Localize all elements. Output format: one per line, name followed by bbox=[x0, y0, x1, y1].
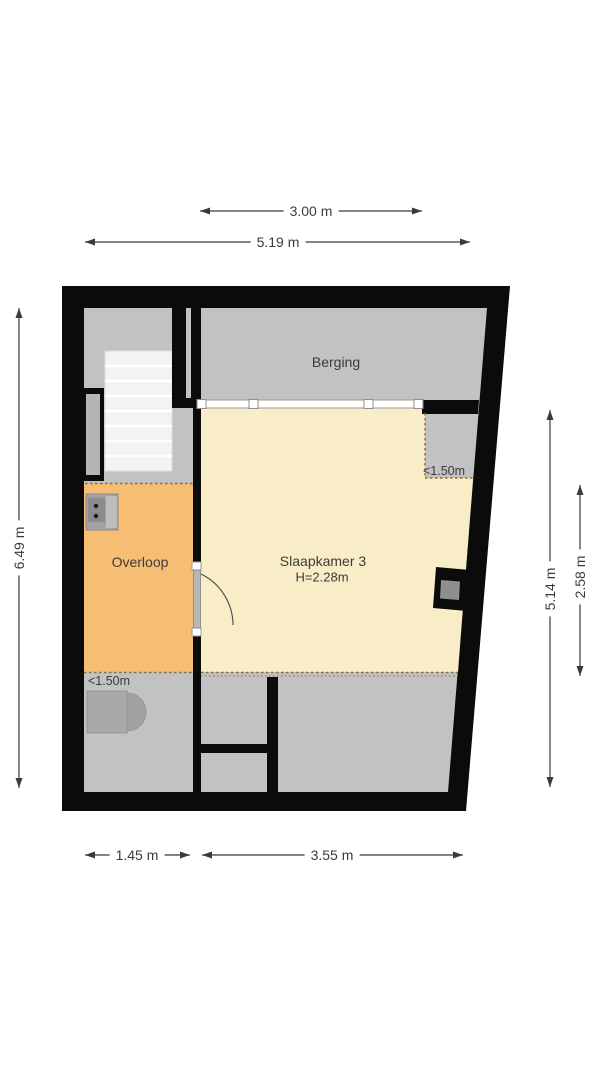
floorplan-drawing bbox=[0, 0, 600, 1067]
window-icon bbox=[433, 567, 470, 611]
mullion-icon bbox=[249, 400, 258, 409]
dim-label-right-inner: 2.58 m bbox=[572, 550, 588, 605]
dim-label-bottom-right: 3.55 m bbox=[305, 847, 360, 863]
room-label-overloop: Overloop bbox=[112, 555, 169, 569]
dim-label-left: 6.49 m bbox=[11, 521, 27, 576]
dormer-object bbox=[87, 691, 146, 733]
dim-label-top-inner: 3.00 m bbox=[284, 203, 339, 219]
room-height-note: H=2.28m bbox=[295, 571, 348, 584]
room-label-berging: Berging bbox=[312, 355, 360, 369]
dim-label-bottom-left: 1.45 m bbox=[110, 847, 165, 863]
wall-shaft bbox=[81, 388, 104, 481]
glass-partition bbox=[197, 400, 423, 409]
dim-label-right-outer: 5.14 m bbox=[542, 562, 558, 617]
low-clearance-label-left: <1.50m bbox=[88, 675, 130, 688]
mullion-icon bbox=[197, 400, 206, 409]
dim-label-top-outer: 5.19 m bbox=[251, 234, 306, 250]
mullion-icon bbox=[364, 400, 373, 409]
floorplan-page: 3.00 m 5.19 m 6.49 m 5.14 m 2.58 m 1.45 … bbox=[0, 0, 600, 1067]
room-label-slaapkamer3: Slaapkamer 3 bbox=[280, 554, 366, 568]
boiler-icon bbox=[86, 494, 118, 530]
stairs-icon bbox=[105, 351, 172, 471]
mullion-icon bbox=[414, 400, 423, 409]
low-clearance-label-right: <1.50m bbox=[423, 465, 465, 478]
